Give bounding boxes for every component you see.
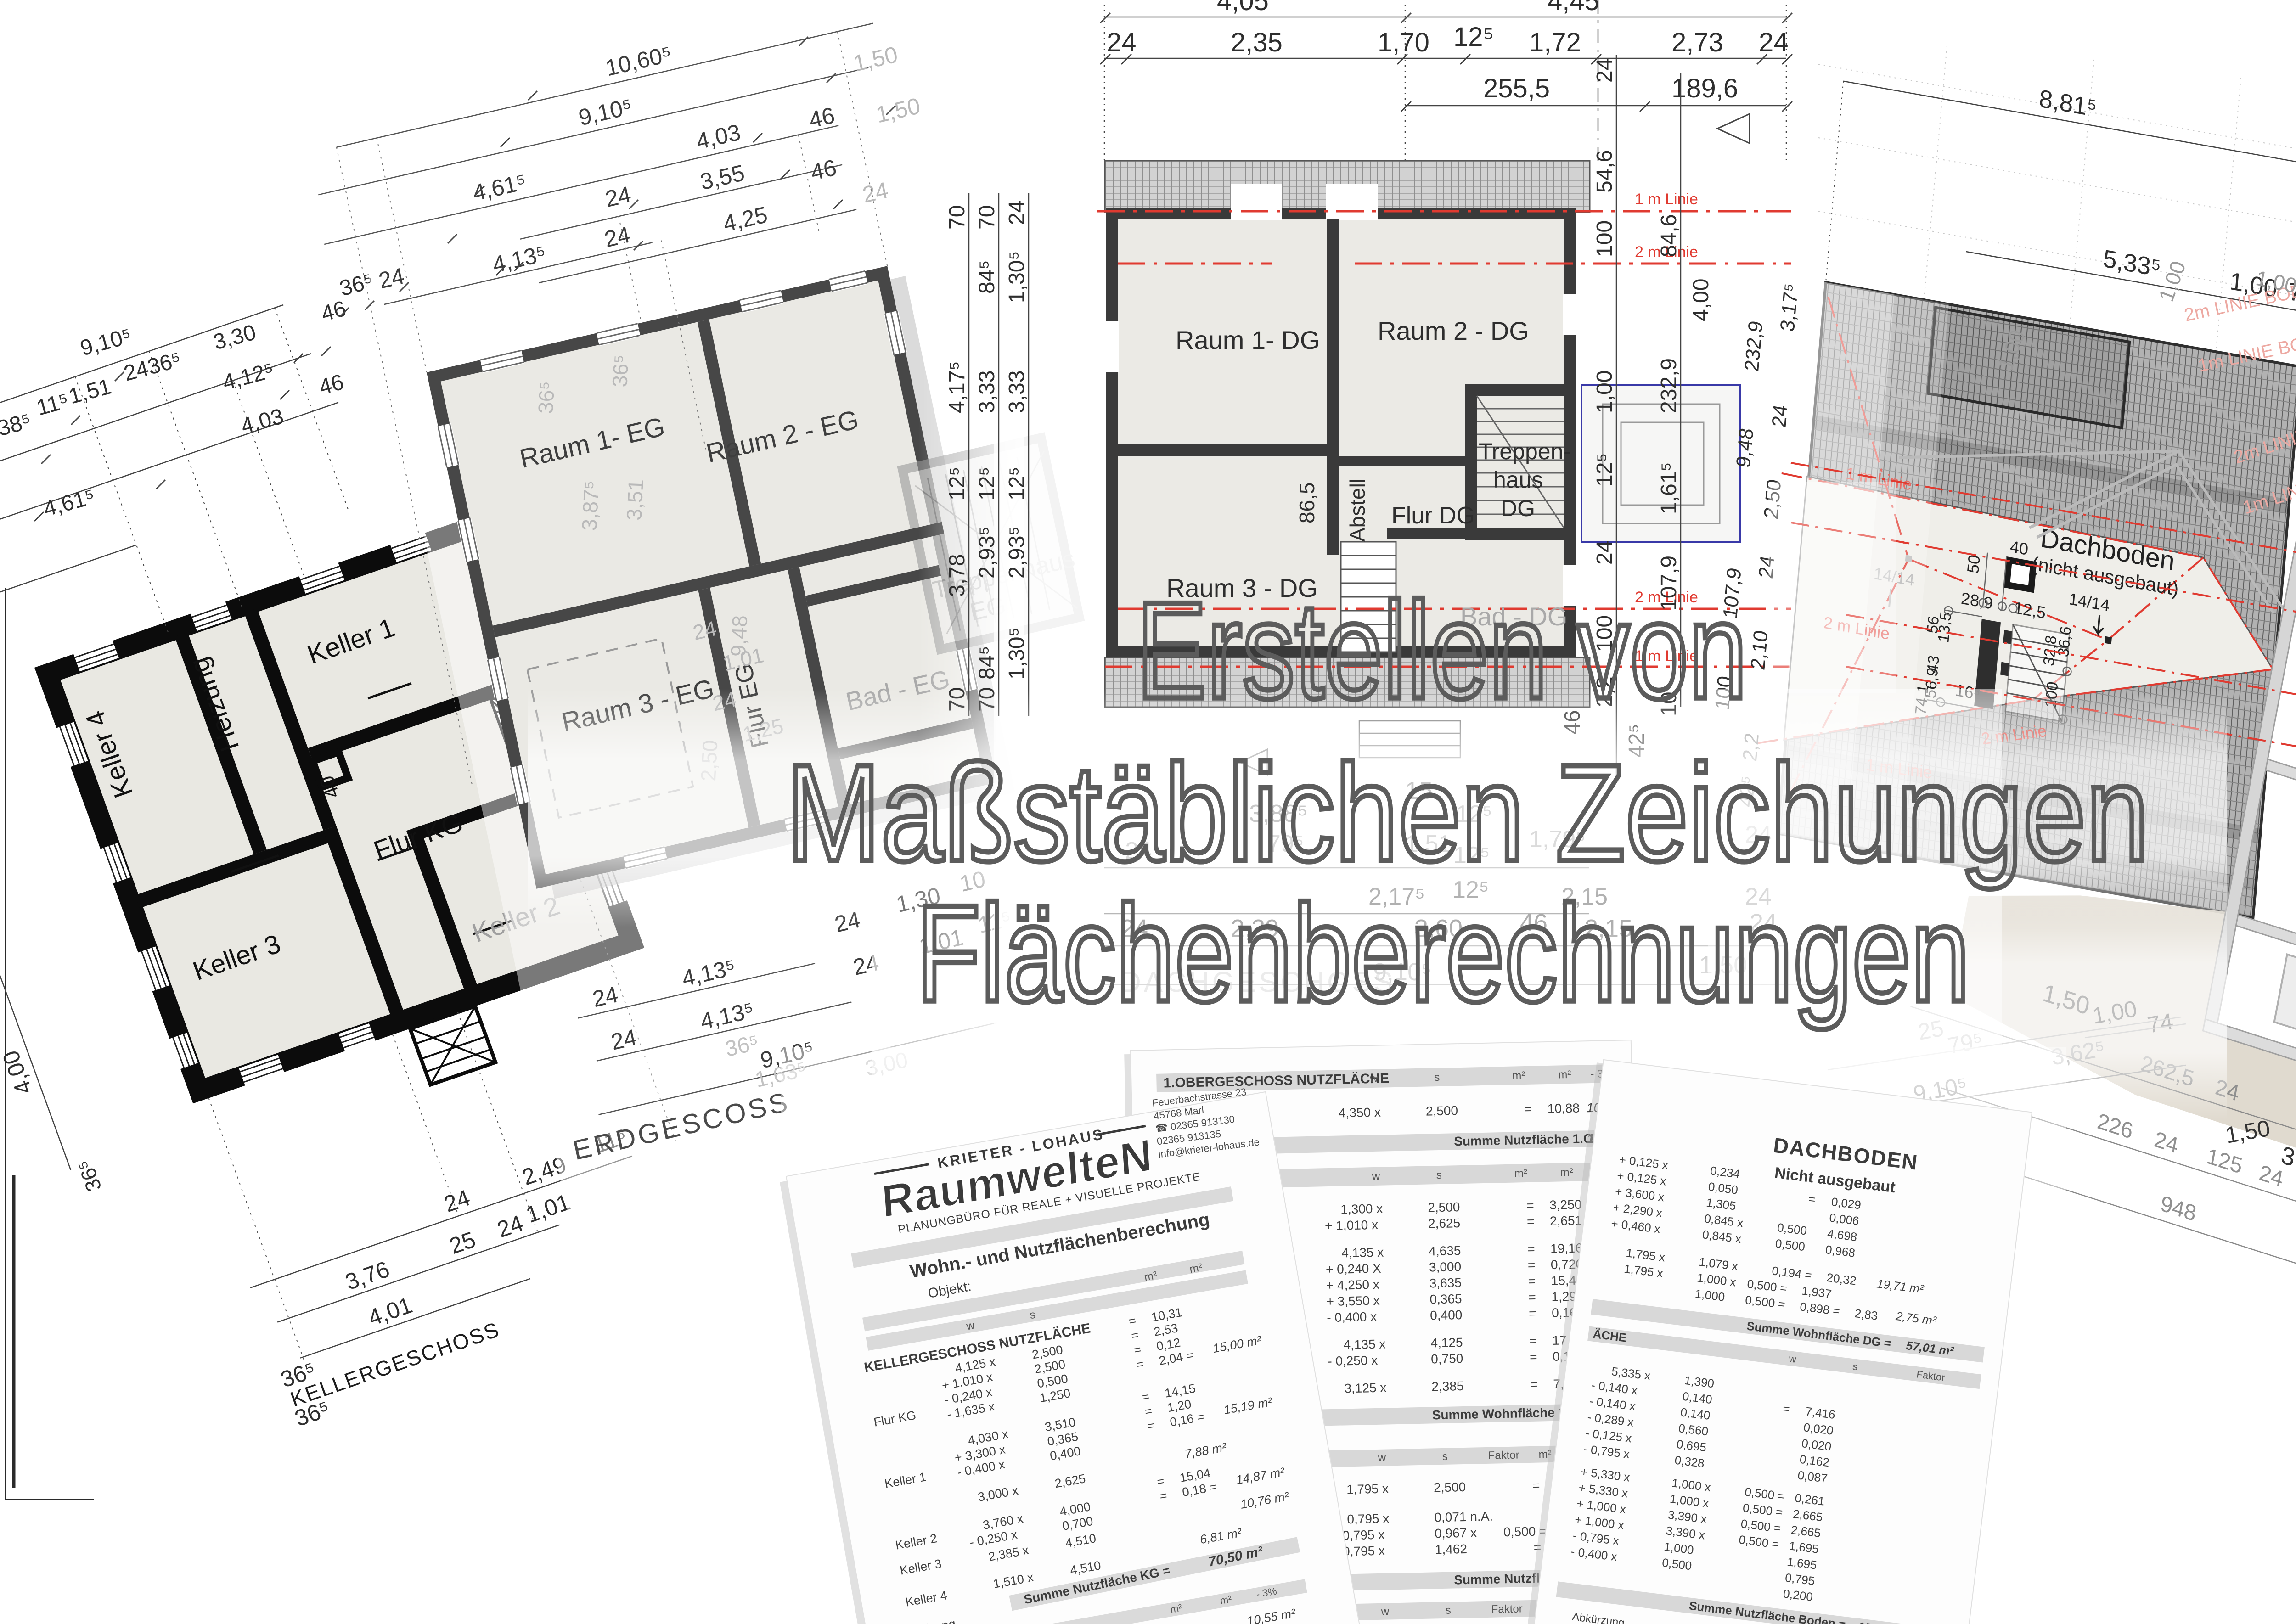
svg-text:4,635: 4,635 — [1429, 1243, 1461, 1258]
svg-text:3,78: 3,78 — [945, 554, 969, 597]
svg-text:0,365: 0,365 — [1429, 1292, 1462, 1306]
svg-text:w: w — [1377, 1452, 1386, 1464]
svg-text:=: = — [1526, 1198, 1534, 1213]
svg-text:3,33: 3,33 — [1005, 371, 1029, 413]
svg-text:0,967 x: 0,967 x — [1435, 1525, 1477, 1540]
svg-text:Maßstäblichen Zeichungen: Maßstäblichen Zeichungen — [786, 736, 2149, 891]
svg-text:50: 50 — [1964, 553, 1984, 575]
svg-text:4,125: 4,125 — [1430, 1335, 1463, 1350]
svg-text:m²: m² — [1188, 1261, 1203, 1276]
svg-text:s: s — [1436, 1169, 1442, 1181]
svg-text:0,795 x: 0,795 x — [1347, 1511, 1389, 1526]
svg-text:3,51: 3,51 — [622, 479, 647, 521]
svg-text:m²: m² — [1560, 1166, 1573, 1179]
svg-text:w: w — [1369, 1073, 1379, 1085]
svg-text:3,125 x: 3,125 x — [1344, 1380, 1386, 1395]
svg-text:24: 24 — [1005, 201, 1029, 225]
svg-text:Faktor: Faktor — [1491, 1602, 1523, 1615]
svg-text:12⁵: 12⁵ — [945, 467, 969, 500]
svg-text:2,500: 2,500 — [1434, 1480, 1466, 1495]
svg-text:9,48: 9,48 — [1732, 426, 1758, 469]
svg-text:=: = — [1529, 1306, 1536, 1321]
svg-text:1,72: 1,72 — [1529, 28, 1581, 57]
svg-text:=: = — [1530, 1350, 1537, 1364]
svg-text:=: = — [1528, 1258, 1536, 1272]
svg-text:- 0,250 x: - 0,250 x — [1328, 1353, 1378, 1368]
svg-text:=: = — [1528, 1290, 1536, 1304]
svg-text:4,17⁵: 4,17⁵ — [945, 361, 969, 413]
svg-text:=: = — [1527, 1242, 1535, 1256]
svg-text:+ 3,550 x: + 3,550 x — [1326, 1293, 1380, 1309]
svg-text:24: 24 — [1759, 28, 1789, 57]
svg-text:1,300 x: 1,300 x — [1340, 1202, 1383, 1217]
svg-text:100: 100 — [1593, 220, 1617, 257]
svg-text:232,9: 232,9 — [1741, 319, 1767, 373]
svg-text:+ 4,250 x: + 4,250 x — [1326, 1277, 1379, 1292]
svg-text:2,500: 2,500 — [1428, 1200, 1460, 1214]
svg-text:3,000: 3,000 — [1429, 1259, 1462, 1274]
svg-text:+ 1,010 x: + 1,010 x — [1325, 1218, 1379, 1233]
svg-text:70: 70 — [975, 205, 999, 230]
svg-text:54,6: 54,6 — [1593, 150, 1617, 193]
svg-text:84⁵: 84⁵ — [975, 260, 999, 294]
svg-text:12⁵: 12⁵ — [1005, 467, 1029, 500]
svg-text:2,500: 2,500 — [1426, 1103, 1458, 1118]
svg-text:=: = — [1530, 1377, 1538, 1392]
svg-text:=: = — [1528, 1274, 1536, 1288]
svg-text:haus: haus — [1493, 467, 1543, 493]
svg-text:2,73: 2,73 — [1671, 28, 1723, 57]
svg-text:Abstell: Abstell — [1345, 478, 1369, 542]
svg-text:3,33: 3,33 — [975, 371, 999, 413]
svg-text:m²: m² — [1143, 1269, 1158, 1283]
svg-text:=: = — [1529, 1334, 1537, 1348]
svg-text:=: = — [1532, 1478, 1540, 1493]
svg-text:m²: m² — [1558, 1068, 1571, 1081]
svg-text:w: w — [1788, 1353, 1797, 1365]
svg-text:Raum 1- DG: Raum 1- DG — [1176, 326, 1320, 354]
svg-text:0,750: 0,750 — [1431, 1351, 1463, 1366]
svg-text:24: 24 — [1593, 58, 1617, 83]
svg-text:255,5: 255,5 — [1483, 73, 1550, 103]
svg-text:4,350 x: 4,350 x — [1339, 1105, 1381, 1120]
svg-text:2,83: 2,83 — [1854, 1306, 1879, 1323]
svg-text:12⁵: 12⁵ — [1453, 22, 1494, 52]
svg-text:86,5: 86,5 — [1295, 482, 1319, 523]
svg-text:s: s — [1445, 1604, 1451, 1617]
svg-text:24: 24 — [1593, 540, 1617, 565]
svg-text:2,93⁵: 2,93⁵ — [1005, 527, 1029, 579]
svg-text:Flur DG: Flur DG — [1391, 502, 1475, 529]
svg-text:m²: m² — [1169, 1602, 1183, 1615]
svg-text:40: 40 — [2009, 537, 2029, 559]
svg-text:189,6: 189,6 — [1671, 73, 1738, 103]
svg-text:DG: DG — [1501, 495, 1535, 521]
svg-text:12⁵: 12⁵ — [1593, 453, 1617, 487]
svg-text:13,5: 13,5 — [1935, 611, 1955, 644]
svg-text:m²: m² — [1219, 1593, 1233, 1607]
svg-text:s: s — [1442, 1450, 1448, 1463]
svg-text:10,88: 10,88 — [1548, 1101, 1580, 1116]
svg-text:0,071 n.A.: 0,071 n.A. — [1434, 1509, 1493, 1525]
svg-text:1,30⁵: 1,30⁵ — [1005, 251, 1029, 303]
svg-text:3,250: 3,250 — [1549, 1197, 1582, 1212]
svg-text:1 m Linie: 1 m Linie — [1635, 191, 1698, 208]
svg-text:0,400: 0,400 — [1430, 1308, 1463, 1322]
svg-text:Treppen-: Treppen- — [1479, 438, 1571, 464]
svg-text:1,00: 1,00 — [1593, 371, 1617, 413]
svg-text:4,05: 4,05 — [1217, 0, 1269, 16]
svg-text:24: 24 — [1768, 403, 1792, 429]
svg-text:1,795 x: 1,795 x — [1346, 1481, 1389, 1496]
svg-text:1,30⁵: 1,30⁵ — [1005, 628, 1029, 680]
svg-text:=: = — [1525, 1102, 1532, 1116]
svg-text:1,61⁵: 1,61⁵ — [1657, 462, 1681, 514]
svg-text:- 0,400 x: - 0,400 x — [1327, 1309, 1377, 1325]
svg-text:=: = — [1527, 1214, 1535, 1229]
svg-text:m²: m² — [1514, 1167, 1528, 1180]
svg-text:2,385: 2,385 — [1431, 1379, 1464, 1394]
svg-text:36⁵: 36⁵ — [534, 381, 559, 414]
svg-text:+ 0,240 X: + 0,240 X — [1326, 1261, 1382, 1277]
svg-text:Erstellen von: Erstellen von — [1137, 573, 1747, 727]
svg-text:36⁵: 36⁵ — [608, 354, 633, 388]
svg-text:2,93⁵: 2,93⁵ — [975, 527, 999, 579]
svg-text:3,635: 3,635 — [1429, 1276, 1462, 1290]
svg-text:12⁵: 12⁵ — [975, 467, 999, 500]
svg-text:4,45: 4,45 — [1548, 0, 1599, 16]
svg-text:s: s — [1434, 1071, 1440, 1084]
svg-text:w: w — [1372, 1170, 1381, 1183]
svg-text:1,70: 1,70 — [1378, 28, 1429, 57]
svg-text:3,87⁵: 3,87⁵ — [577, 480, 603, 531]
svg-text:Flächenberechnungen: Flächenberechnungen — [916, 876, 1970, 1031]
svg-text:2,35: 2,35 — [1231, 28, 1283, 57]
svg-text:4,135 x: 4,135 x — [1341, 1245, 1384, 1260]
svg-text:70: 70 — [945, 205, 969, 230]
svg-text:4,00: 4,00 — [1689, 279, 1713, 321]
svg-text:232,9: 232,9 — [1657, 358, 1681, 413]
svg-text:m²: m² — [1512, 1069, 1525, 1082]
svg-text:84⁵: 84⁵ — [975, 646, 999, 680]
svg-text:Raum 2 - DG: Raum 2 - DG — [1378, 316, 1529, 345]
svg-text:2,625: 2,625 — [1428, 1216, 1461, 1231]
svg-text:1,462: 1,462 — [1435, 1542, 1468, 1557]
svg-text:w: w — [1380, 1605, 1390, 1618]
svg-text:3,17⁵: 3,17⁵ — [1776, 282, 1802, 333]
svg-text:24: 24 — [1107, 28, 1137, 57]
svg-text:84,6: 84,6 — [1657, 214, 1681, 257]
svg-text:4,135 x: 4,135 x — [1343, 1337, 1385, 1352]
svg-text:Faktor: Faktor — [1488, 1449, 1519, 1461]
